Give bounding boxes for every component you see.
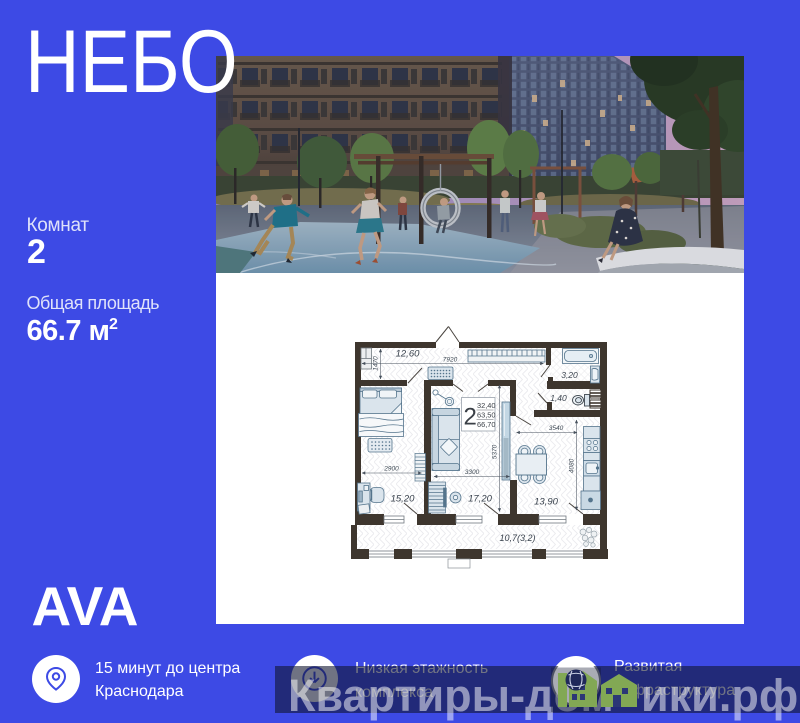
svg-text:12,60: 12,60 [396, 349, 420, 360]
svg-text:63,50: 63,50 [477, 411, 496, 420]
svg-text:1,40: 1,40 [550, 393, 567, 403]
svg-text:2: 2 [464, 404, 477, 431]
svg-text:4080: 4080 [569, 458, 576, 473]
svg-text:3,20: 3,20 [561, 370, 578, 380]
svg-text:1470: 1470 [373, 356, 380, 371]
svg-text:32,40: 32,40 [477, 401, 496, 410]
svg-text:13,90: 13,90 [534, 497, 558, 508]
svg-text:15,20: 15,20 [391, 494, 415, 505]
svg-text:7920: 7920 [443, 357, 458, 364]
svg-text:66,70: 66,70 [477, 420, 496, 429]
svg-text:2900: 2900 [383, 466, 399, 473]
svg-text:10,7(3,2): 10,7(3,2) [499, 533, 535, 543]
svg-text:3300: 3300 [465, 469, 480, 476]
svg-text:17,20: 17,20 [468, 494, 492, 505]
svg-text:3540: 3540 [549, 425, 564, 432]
svg-text:5370: 5370 [492, 444, 499, 459]
